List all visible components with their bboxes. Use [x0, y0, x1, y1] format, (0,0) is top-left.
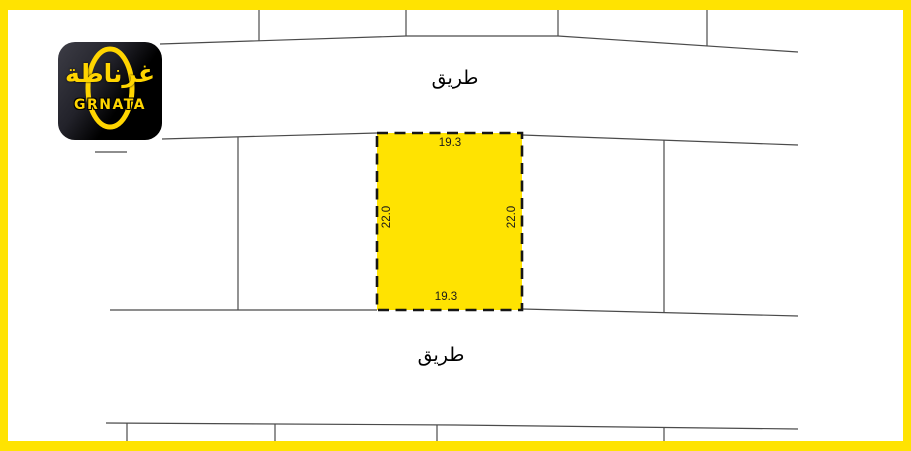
road-label-top: طريق — [427, 69, 483, 88]
grnata-logo: غرناطة GRNATA — [58, 42, 162, 140]
road-label-bottom: طريق — [413, 346, 469, 365]
plot-dim-left: 22.0 — [382, 195, 396, 239]
logo-latin-wordmark: GRNATA — [58, 97, 162, 113]
plot-dim-right: 22.0 — [507, 195, 521, 239]
logo-ring-icon — [58, 42, 162, 140]
highlighted-plot — [377, 133, 522, 310]
logo-arabic-wordmark: غرناطة — [58, 59, 162, 88]
plot-dim-top: 19.3 — [428, 138, 472, 152]
plot-dim-bottom: 19.3 — [424, 292, 468, 306]
plot-map-frame: طريق طريق 19.3 19.3 22.0 22.0 غرناطة GRN… — [0, 0, 911, 451]
